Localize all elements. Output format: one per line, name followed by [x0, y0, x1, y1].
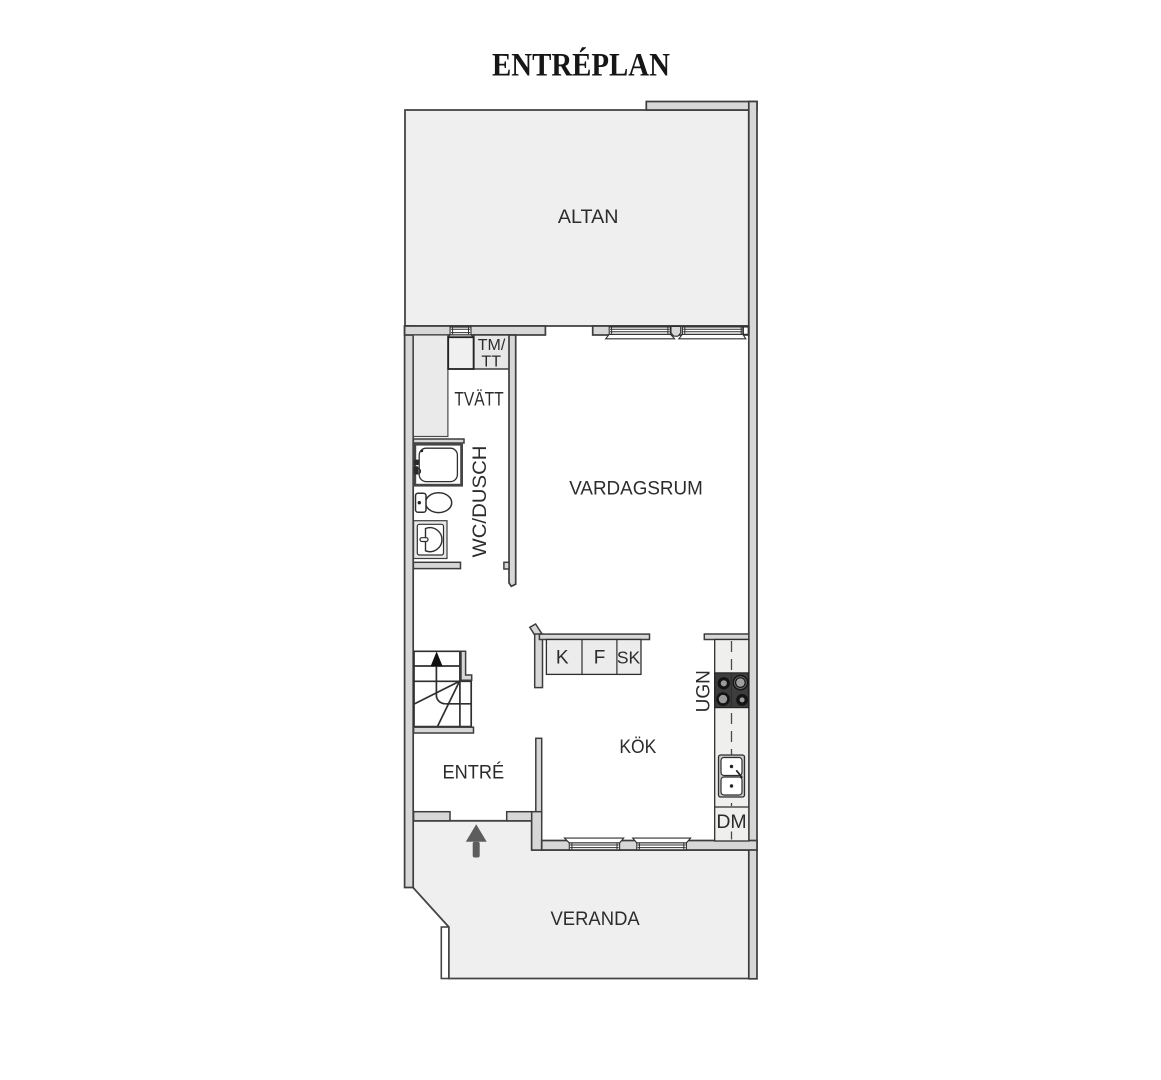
svg-text:TVÄTT: TVÄTT	[454, 390, 504, 411]
svg-text:KÖK: KÖK	[619, 737, 656, 758]
svg-text:ENTRÉPLAN: ENTRÉPLAN	[492, 47, 670, 84]
svg-text:SK: SK	[617, 647, 641, 667]
svg-text:K: K	[556, 648, 569, 669]
svg-text:TT: TT	[481, 353, 501, 370]
svg-text:ENTRÉ: ENTRÉ	[442, 762, 504, 783]
svg-text:UGN: UGN	[693, 670, 714, 712]
svg-text:ALTAN: ALTAN	[558, 207, 619, 228]
svg-text:VERANDA: VERANDA	[551, 909, 641, 930]
svg-text:DM: DM	[716, 811, 746, 833]
svg-text:TM/: TM/	[478, 337, 506, 354]
svg-text:F: F	[594, 648, 606, 669]
svg-text:VARDAGSRUM: VARDAGSRUM	[569, 479, 703, 500]
svg-text:WC/DUSCH: WC/DUSCH	[470, 446, 491, 558]
